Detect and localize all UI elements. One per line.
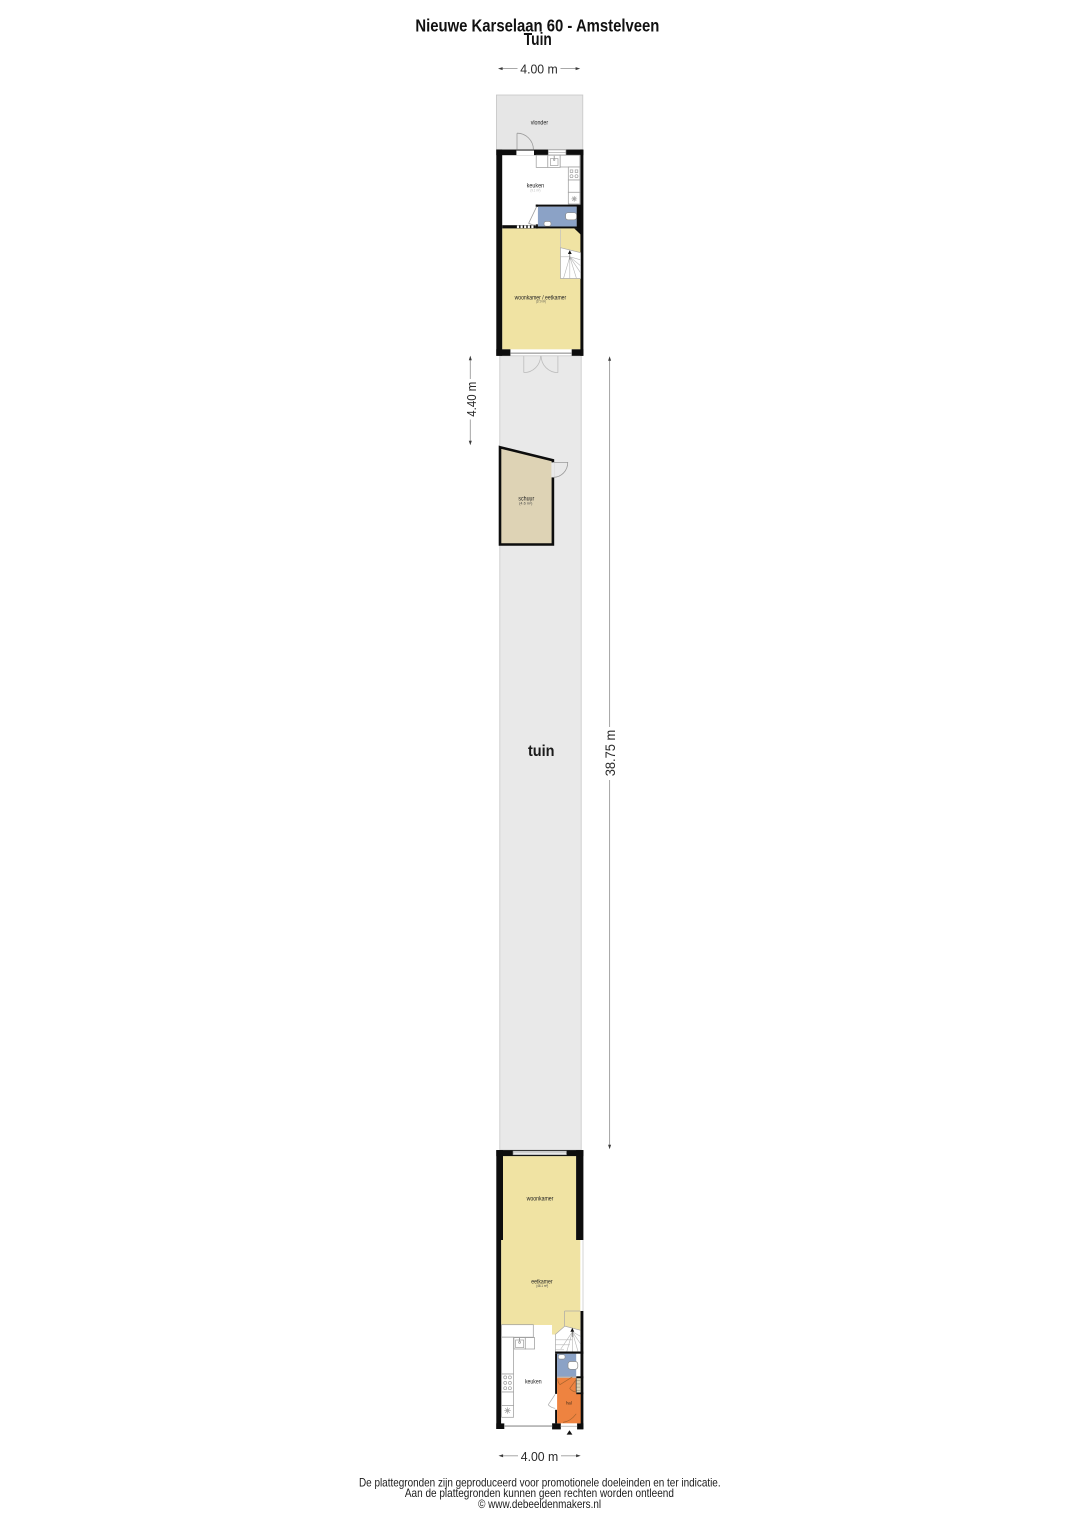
svg-text:4.00 m: 4.00 m	[520, 62, 558, 77]
svg-text:© www.debeeldenmakers.nl: © www.debeeldenmakers.nl	[478, 1498, 601, 1511]
svg-text:vlonder: vlonder	[531, 120, 548, 126]
svg-text:Tuin: Tuin	[524, 29, 552, 49]
svg-text:woonkamer: woonkamer	[526, 1196, 554, 1202]
svg-text:hal: hal	[566, 1401, 572, 1406]
svg-text:keuken: keuken	[525, 1379, 542, 1385]
svg-text:(48.1 m²): (48.1 m²)	[536, 1284, 548, 1288]
svg-text:(4.6 m²): (4.6 m²)	[519, 501, 533, 505]
svg-text:(9.1 m²): (9.1 m²)	[530, 189, 540, 193]
svg-text:4.00 m: 4.00 m	[521, 1449, 559, 1464]
svg-text:38.75 m: 38.75 m	[603, 730, 618, 777]
svg-text:(17.9 m²): (17.9 m²)	[536, 300, 546, 304]
svg-text:tuin: tuin	[528, 743, 555, 760]
svg-text:4.40 m: 4.40 m	[464, 382, 479, 417]
